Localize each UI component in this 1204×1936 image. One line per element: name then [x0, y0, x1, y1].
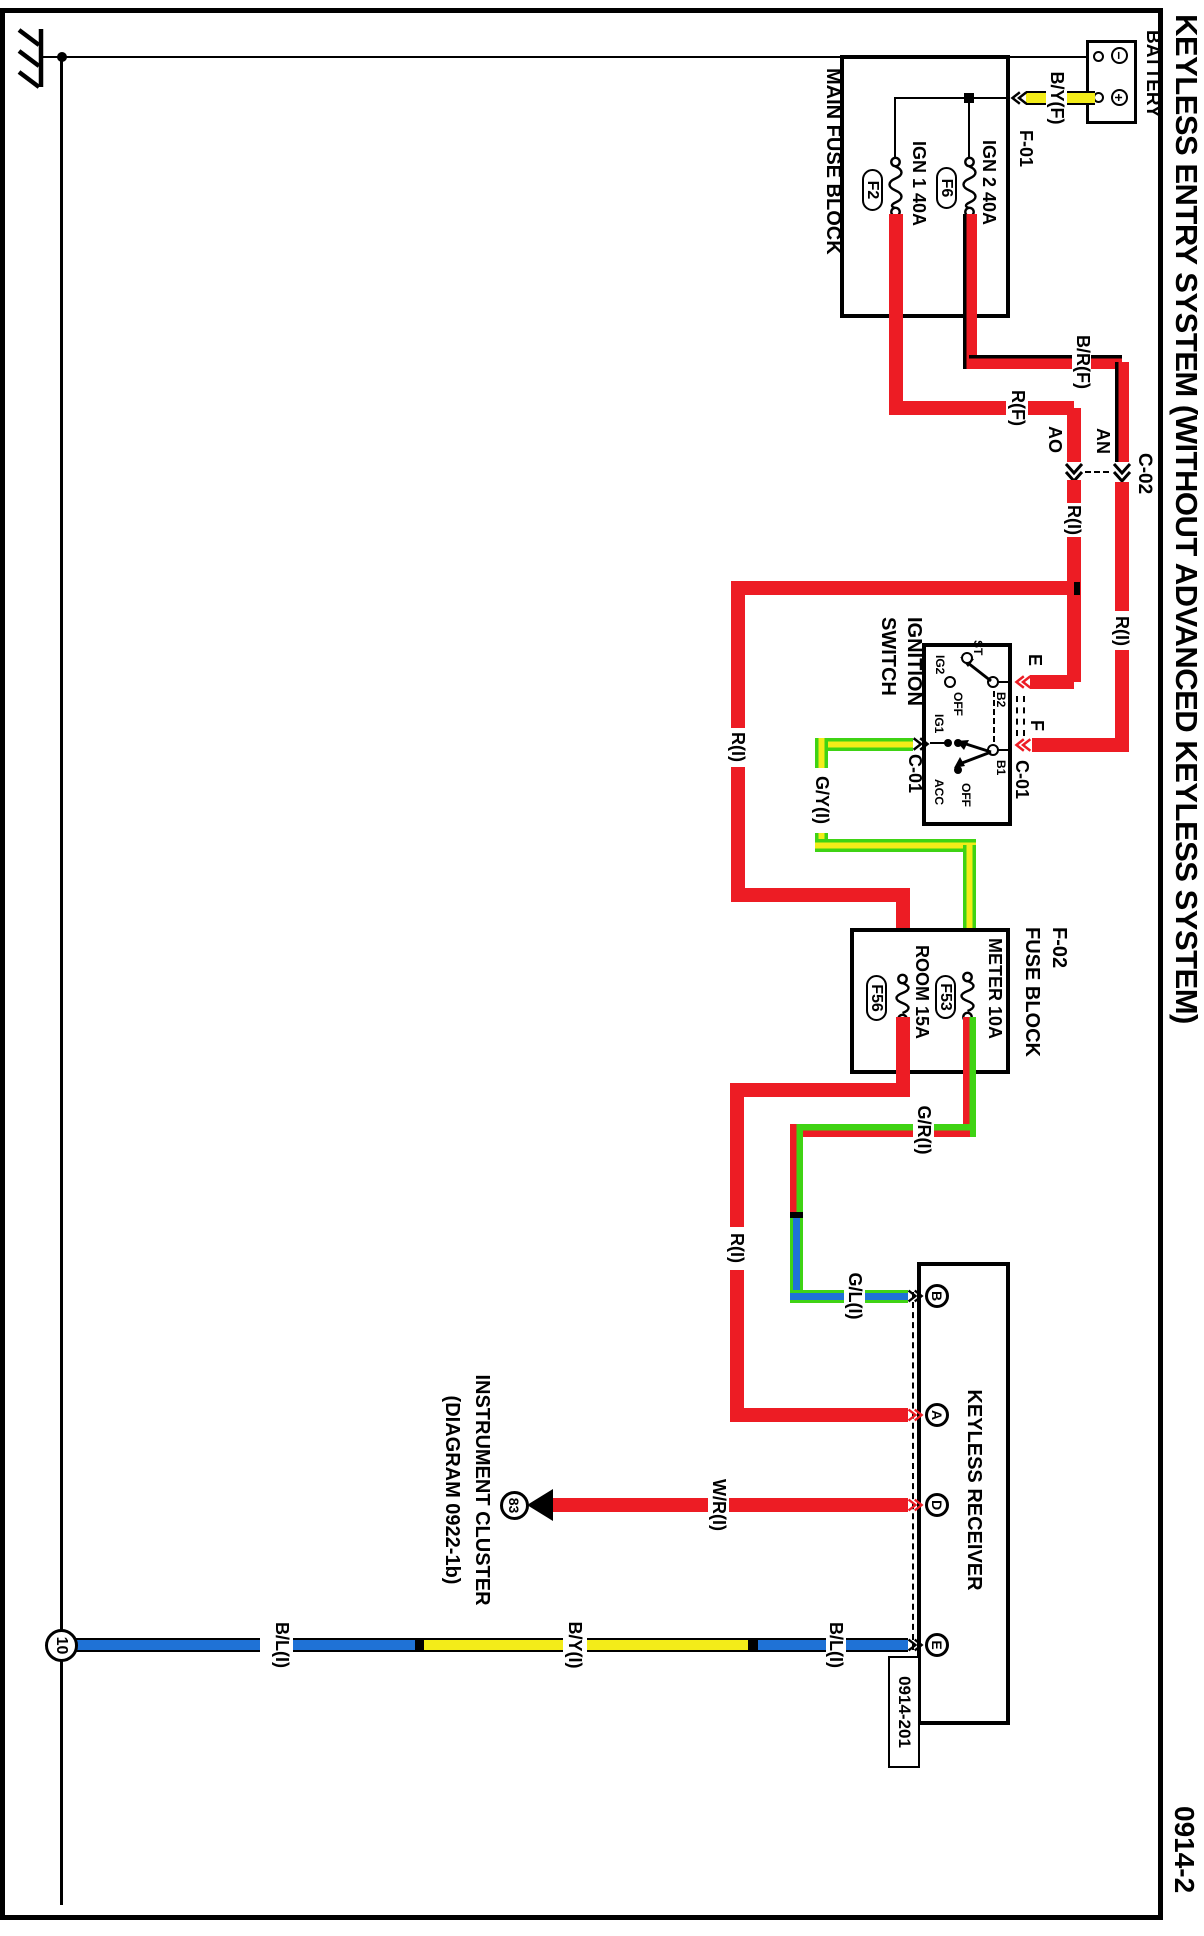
wire-ri-long-vup: [738, 888, 903, 902]
wire-gy-v1: [815, 738, 913, 751]
wire-ri-an-v: [1032, 738, 1122, 752]
ign-ig1-stub: [930, 742, 948, 745]
wire-gy-h1a: [815, 738, 828, 768]
ignition-terminal-f-label: F: [1028, 720, 1046, 731]
wire-ri-a-h2: [730, 1083, 744, 1227]
fuse-symbol-ign1: [887, 156, 904, 218]
receiver-connector-dashed-2: [912, 1292, 914, 1650]
connector-chevron-c02-ao-icon: [1063, 462, 1085, 482]
receiver-terminal-b: B: [925, 1284, 949, 1308]
cavity-label-ao: AO: [1046, 426, 1064, 453]
receiver-terminal-e: E: [925, 1633, 949, 1657]
connector-chevron-c01-ig1-icon: [912, 734, 930, 754]
wiring-diagram-canvas: KEYLESS ENTRY SYSTEM (WITHOUT ADVANCED K…: [0, 0, 1204, 1936]
wire-ri-ao-h2: [1067, 537, 1081, 682]
wire-gl-v2: [790, 1290, 844, 1303]
wire-label-brf: B/R(F): [1074, 329, 1092, 395]
f02-block-label-1: F-02: [1049, 927, 1069, 968]
ign-label-off-1: OFF: [952, 692, 964, 716]
wire-brf-h2: [1115, 362, 1129, 462]
fuse-feed-junction-dot: [964, 93, 974, 103]
battery-positive-symbol: +: [1111, 89, 1128, 106]
page-number: 0914-2: [1170, 1806, 1198, 1893]
f02-block-label-2: FUSE BLOCK: [1022, 927, 1042, 1057]
wire-wr-v1: [729, 1498, 908, 1512]
wire-label-bl-2: B/L(I): [273, 1614, 291, 1676]
ground-point-circle: 10: [45, 1629, 78, 1662]
wire-color-splice-1: [748, 1638, 758, 1652]
wire-label-bl-1: B/L(I): [827, 1614, 845, 1676]
wire-ri-a-v1: [737, 1083, 903, 1097]
wire-rf-h1: [889, 214, 903, 415]
battery-negative-symbol: −: [1111, 47, 1128, 64]
fuse-branch-line-1: [968, 97, 971, 163]
wire-by-seg1: [587, 1638, 748, 1652]
connector-chevron-recv-e-icon: [907, 1635, 924, 1655]
connector-chevron-ign-e-icon: [1014, 672, 1032, 692]
wire-byf-seg1: [1067, 91, 1095, 105]
wire-label-by: B/Y(I): [566, 1613, 584, 1677]
fuse-name-ign1: IGN 1 40A: [910, 141, 928, 226]
fuse-branch-line-2: [894, 97, 897, 163]
wire-by-seg2: [424, 1638, 563, 1652]
fuse-id-f2: F2: [862, 169, 883, 211]
ign-label-ig1: IG1: [933, 714, 945, 733]
offpage-ref-circle: 83: [500, 1491, 529, 1520]
wire-rf-v2: [896, 401, 1006, 415]
wire-label-gr: G/R(I): [915, 1097, 933, 1163]
connector-label-c01-top: C-01: [1013, 760, 1031, 799]
wire-ri-long-h2: [731, 767, 745, 902]
wire-rf-h2: [1067, 408, 1081, 462]
connector-c02-dashed-link: [1085, 471, 1109, 473]
wire-label-ri-a: R(I): [728, 1228, 746, 1268]
ign-label-st: ST: [972, 640, 984, 655]
wire-ri-e-drop: [1030, 675, 1074, 689]
connector-c01-top-dashed-1: [1023, 696, 1025, 736]
ign-terminal-acc: [954, 766, 962, 774]
connector-chevron-recv-a-icon: [907, 1405, 924, 1425]
fuse-name-meter: METER 10A: [986, 938, 1004, 1039]
wire-label-wr: W/R(I): [710, 1473, 728, 1537]
wire-wr-v2: [551, 1498, 708, 1512]
wire-ri-an-h1: [1115, 482, 1129, 611]
ign-e-stub: [998, 681, 1012, 684]
connector-label-c01-bottom: C-01: [906, 754, 924, 793]
diagram-title: KEYLESS ENTRY SYSTEM (WITHOUT ADVANCED K…: [1171, 14, 1202, 1024]
wire-label-ri-long: R(I): [729, 727, 747, 767]
wire-gl-v1: [865, 1290, 908, 1303]
connector-c01-top-dashed-2: [1016, 696, 1018, 736]
wire-label-gy: G/Y(I): [813, 768, 831, 832]
fuse-name-room: ROOM 15A: [913, 945, 931, 1039]
ign-terminal-ig1-a: [954, 739, 962, 747]
connector-chevron-recv-d-icon: [907, 1495, 924, 1515]
wire-bl-seg4: [76, 1638, 260, 1652]
receiver-connector-dashed-1: [919, 1292, 921, 1650]
connector-chevron-c02-an-icon: [1111, 462, 1133, 482]
wire-ri-an-h2: [1115, 650, 1129, 752]
receiver-terminal-a: A: [925, 1403, 949, 1427]
fuse-symbol-ign2: [961, 156, 978, 218]
wire-ri-junction-v: [738, 581, 1074, 595]
wire-gr-h2: [790, 1124, 803, 1219]
wire-label-ri-an: R(I): [1113, 611, 1131, 651]
battery-negative-terminal: [1093, 51, 1104, 62]
connector-chevron-f01-icon: [1010, 88, 1028, 108]
ignition-terminal-e-label: E: [1026, 654, 1044, 666]
fuse-id-f6: F6: [936, 167, 957, 209]
offpage-arrow-icon: [527, 1489, 553, 1521]
wire-brf-h1: [963, 214, 977, 369]
wire-ri-a-h3: [730, 1270, 744, 1422]
wire-byf-seg2: [1026, 91, 1046, 105]
wire-bl-seg2: [758, 1638, 826, 1652]
wire-gr-v1: [934, 1124, 970, 1137]
ground-symbol-icon: [13, 25, 45, 91]
ignition-switch-label-2: SWITCH: [878, 617, 898, 696]
connector-chevron-recv-b-icon: [907, 1286, 924, 1306]
ign-f-stub: [998, 749, 1012, 752]
fuse-id-f53: F53: [935, 975, 956, 1019]
connector-label-f01: F-01: [1017, 130, 1035, 167]
wire-gr-h1: [963, 1017, 976, 1137]
main-fuse-block-label: MAIN FUSE BLOCK: [823, 68, 843, 255]
fuse-id-f56: F56: [866, 975, 887, 1021]
wire-bl-seg3: [293, 1638, 415, 1652]
wire-ri-long-h1: [731, 581, 745, 728]
ground-bus-line: [61, 57, 64, 1905]
instrument-cluster-label-1: INSTRUMENT CLUSTER: [472, 1320, 492, 1660]
ign-label-ig2: IG2: [934, 655, 946, 674]
battery-label: BATTERY: [1143, 30, 1162, 118]
ign-label-b2: B2: [995, 692, 1007, 707]
cavity-label-an: AN: [1094, 428, 1112, 454]
ignition-switch-label-1: IGNITION: [904, 617, 924, 706]
wire-ri-a-v2: [737, 1408, 908, 1422]
receiver-terminal-d: D: [925, 1493, 949, 1517]
wire-color-splice-2: [415, 1638, 424, 1652]
wire-gr-v2: [790, 1124, 913, 1137]
wire-label-ri-ao: R(I): [1065, 500, 1083, 540]
keyless-receiver-label: KEYLESS RECEIVER: [964, 1280, 984, 1700]
fuse-feed-line: [894, 97, 1010, 100]
connector-chevron-ign-f-icon: [1014, 735, 1032, 755]
wire-brf-v2: [969, 355, 1072, 369]
ign-label-off-2: OFF: [960, 783, 972, 807]
wire-label-byf: B/Y(F): [1048, 66, 1066, 130]
fuse-symbol-meter: [959, 971, 976, 1023]
connector-label-c02: C-02: [1135, 453, 1154, 494]
wire-bl-seg1: [846, 1638, 908, 1652]
ign-terminal-ig2: [944, 676, 956, 688]
receiver-connector-ref-box: 0914-201: [888, 1656, 920, 1768]
ign-label-acc: ACC: [933, 779, 945, 805]
wire-gy-v2: [815, 839, 976, 852]
wire-label-rf: R(F): [1009, 386, 1027, 430]
wire-label-gl: G/L(I): [846, 1263, 864, 1329]
fuse-name-ign2: IGN 2 40A: [980, 140, 998, 225]
instrument-cluster-label-2: (DIAGRAM 0922-1b): [442, 1320, 462, 1660]
